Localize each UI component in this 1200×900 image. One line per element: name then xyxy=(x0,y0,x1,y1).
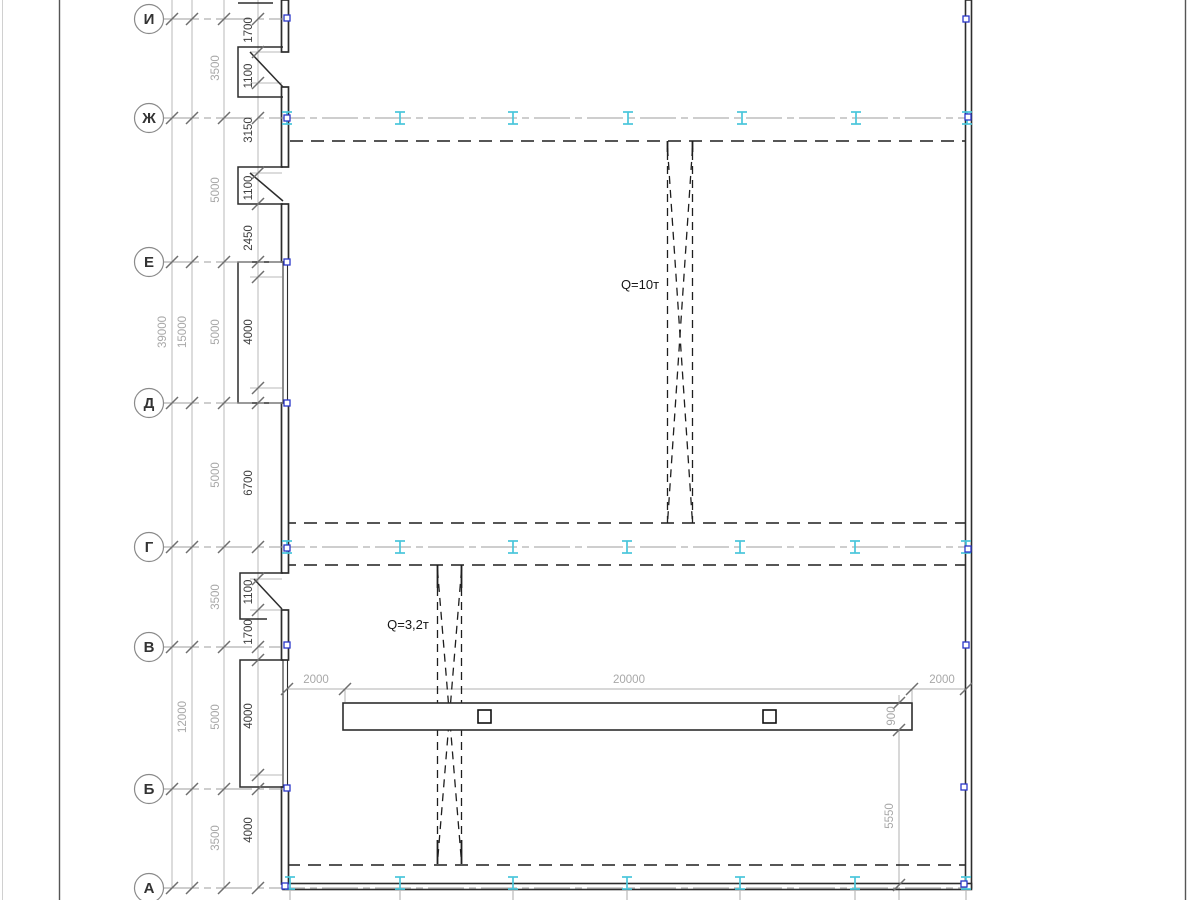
dim-label-vertical: 3500 xyxy=(210,55,222,81)
dim-label-vertical: 5000 xyxy=(210,319,222,345)
left-wall-bar xyxy=(282,610,289,660)
walls xyxy=(238,0,972,890)
node-marker-icon xyxy=(963,642,969,648)
left-wall-bar xyxy=(282,204,289,262)
dim-label-vertical: 4000 xyxy=(243,319,255,345)
beam-body xyxy=(343,703,912,730)
dim-label-vertical: 2450 xyxy=(243,225,255,251)
left-wall-bar xyxy=(282,0,289,52)
dim-label-vertical: 5000 xyxy=(210,704,222,730)
beam-square-left xyxy=(478,710,491,723)
bottom-grid-stubs xyxy=(290,890,966,900)
node-marker-icon xyxy=(284,115,290,121)
left-wall-bar xyxy=(282,87,289,167)
dim-label-vertical: 4000 xyxy=(243,817,255,843)
beam-dimension-line xyxy=(287,689,966,702)
node-marker-icon xyxy=(282,883,288,889)
dim-label-vertical: 1100 xyxy=(243,176,255,201)
axis-letter: И xyxy=(144,11,155,28)
node-marker-icon xyxy=(965,546,971,552)
left-wall-bar xyxy=(282,787,289,884)
crane-capacity-label: Q=3,2т xyxy=(387,617,429,632)
beam xyxy=(343,703,912,730)
node-marker-icon xyxy=(284,545,290,551)
dim-label-vertical: 1100 xyxy=(243,64,255,89)
drawing-sheet: ИЖЕДГВБА 3900015000120003500500050005000… xyxy=(0,0,1200,900)
node-markers xyxy=(282,15,971,889)
dim-label-vertical: 5000 xyxy=(210,177,222,203)
node-marker-icon xyxy=(284,400,290,406)
dim-label-vertical: 900 xyxy=(886,706,898,725)
axis-letter: А xyxy=(144,880,155,897)
crane-capacity-label: Q=10т xyxy=(621,277,659,292)
dim-label-vertical: 5000 xyxy=(210,462,222,488)
node-marker-icon xyxy=(284,785,290,791)
dim-label-vertical: 5550 xyxy=(884,803,896,829)
dim-label-vertical: 15000 xyxy=(177,316,189,348)
node-marker-icon xyxy=(961,784,967,790)
dim-label-horizontal: 2000 xyxy=(303,674,329,686)
floor-plan-canvas: ИЖЕДГВБА 3900015000120003500500050005000… xyxy=(0,0,1200,900)
axis-letter: Е xyxy=(144,254,154,271)
crane-runways xyxy=(283,141,965,865)
right-wall xyxy=(966,0,972,888)
sheet-frame xyxy=(3,0,1186,900)
dim-label-vertical: 1700 xyxy=(243,17,255,43)
node-marker-icon xyxy=(961,881,967,887)
dim-label-vertical: 6700 xyxy=(243,470,255,496)
column-symbols xyxy=(282,112,972,889)
axis-letter: В xyxy=(144,639,155,656)
dim-label-vertical: 3150 xyxy=(243,117,255,143)
axis-letter: Г xyxy=(145,539,154,556)
node-marker-icon xyxy=(963,16,969,22)
dim-label-vertical: 4000 xyxy=(243,703,255,729)
dim-label-vertical: 1700 xyxy=(243,619,255,645)
node-marker-icon xyxy=(284,15,290,21)
dim-label-vertical: 12000 xyxy=(177,701,189,733)
axis-lines-and-bubbles: ИЖЕДГВБА xyxy=(135,5,967,900)
dim-label-vertical: 3500 xyxy=(210,584,222,610)
axis-letter: Б xyxy=(144,781,155,798)
dim-label-vertical: 3500 xyxy=(210,825,222,851)
node-marker-icon xyxy=(965,114,971,120)
dim-label-vertical: 39000 xyxy=(157,316,169,348)
dim-label-vertical: 1100 xyxy=(243,580,255,605)
axis-letter: Д xyxy=(144,395,155,412)
crane-upper-q10 xyxy=(668,141,693,523)
dim-label-horizontal: 2000 xyxy=(929,674,955,686)
dim-label-horizontal: 20000 xyxy=(613,674,645,686)
beam-square-right xyxy=(763,710,776,723)
dim-extension-lines xyxy=(250,52,282,775)
node-marker-icon xyxy=(284,259,290,265)
axis-letter: Ж xyxy=(141,110,156,127)
node-marker-icon xyxy=(284,642,290,648)
